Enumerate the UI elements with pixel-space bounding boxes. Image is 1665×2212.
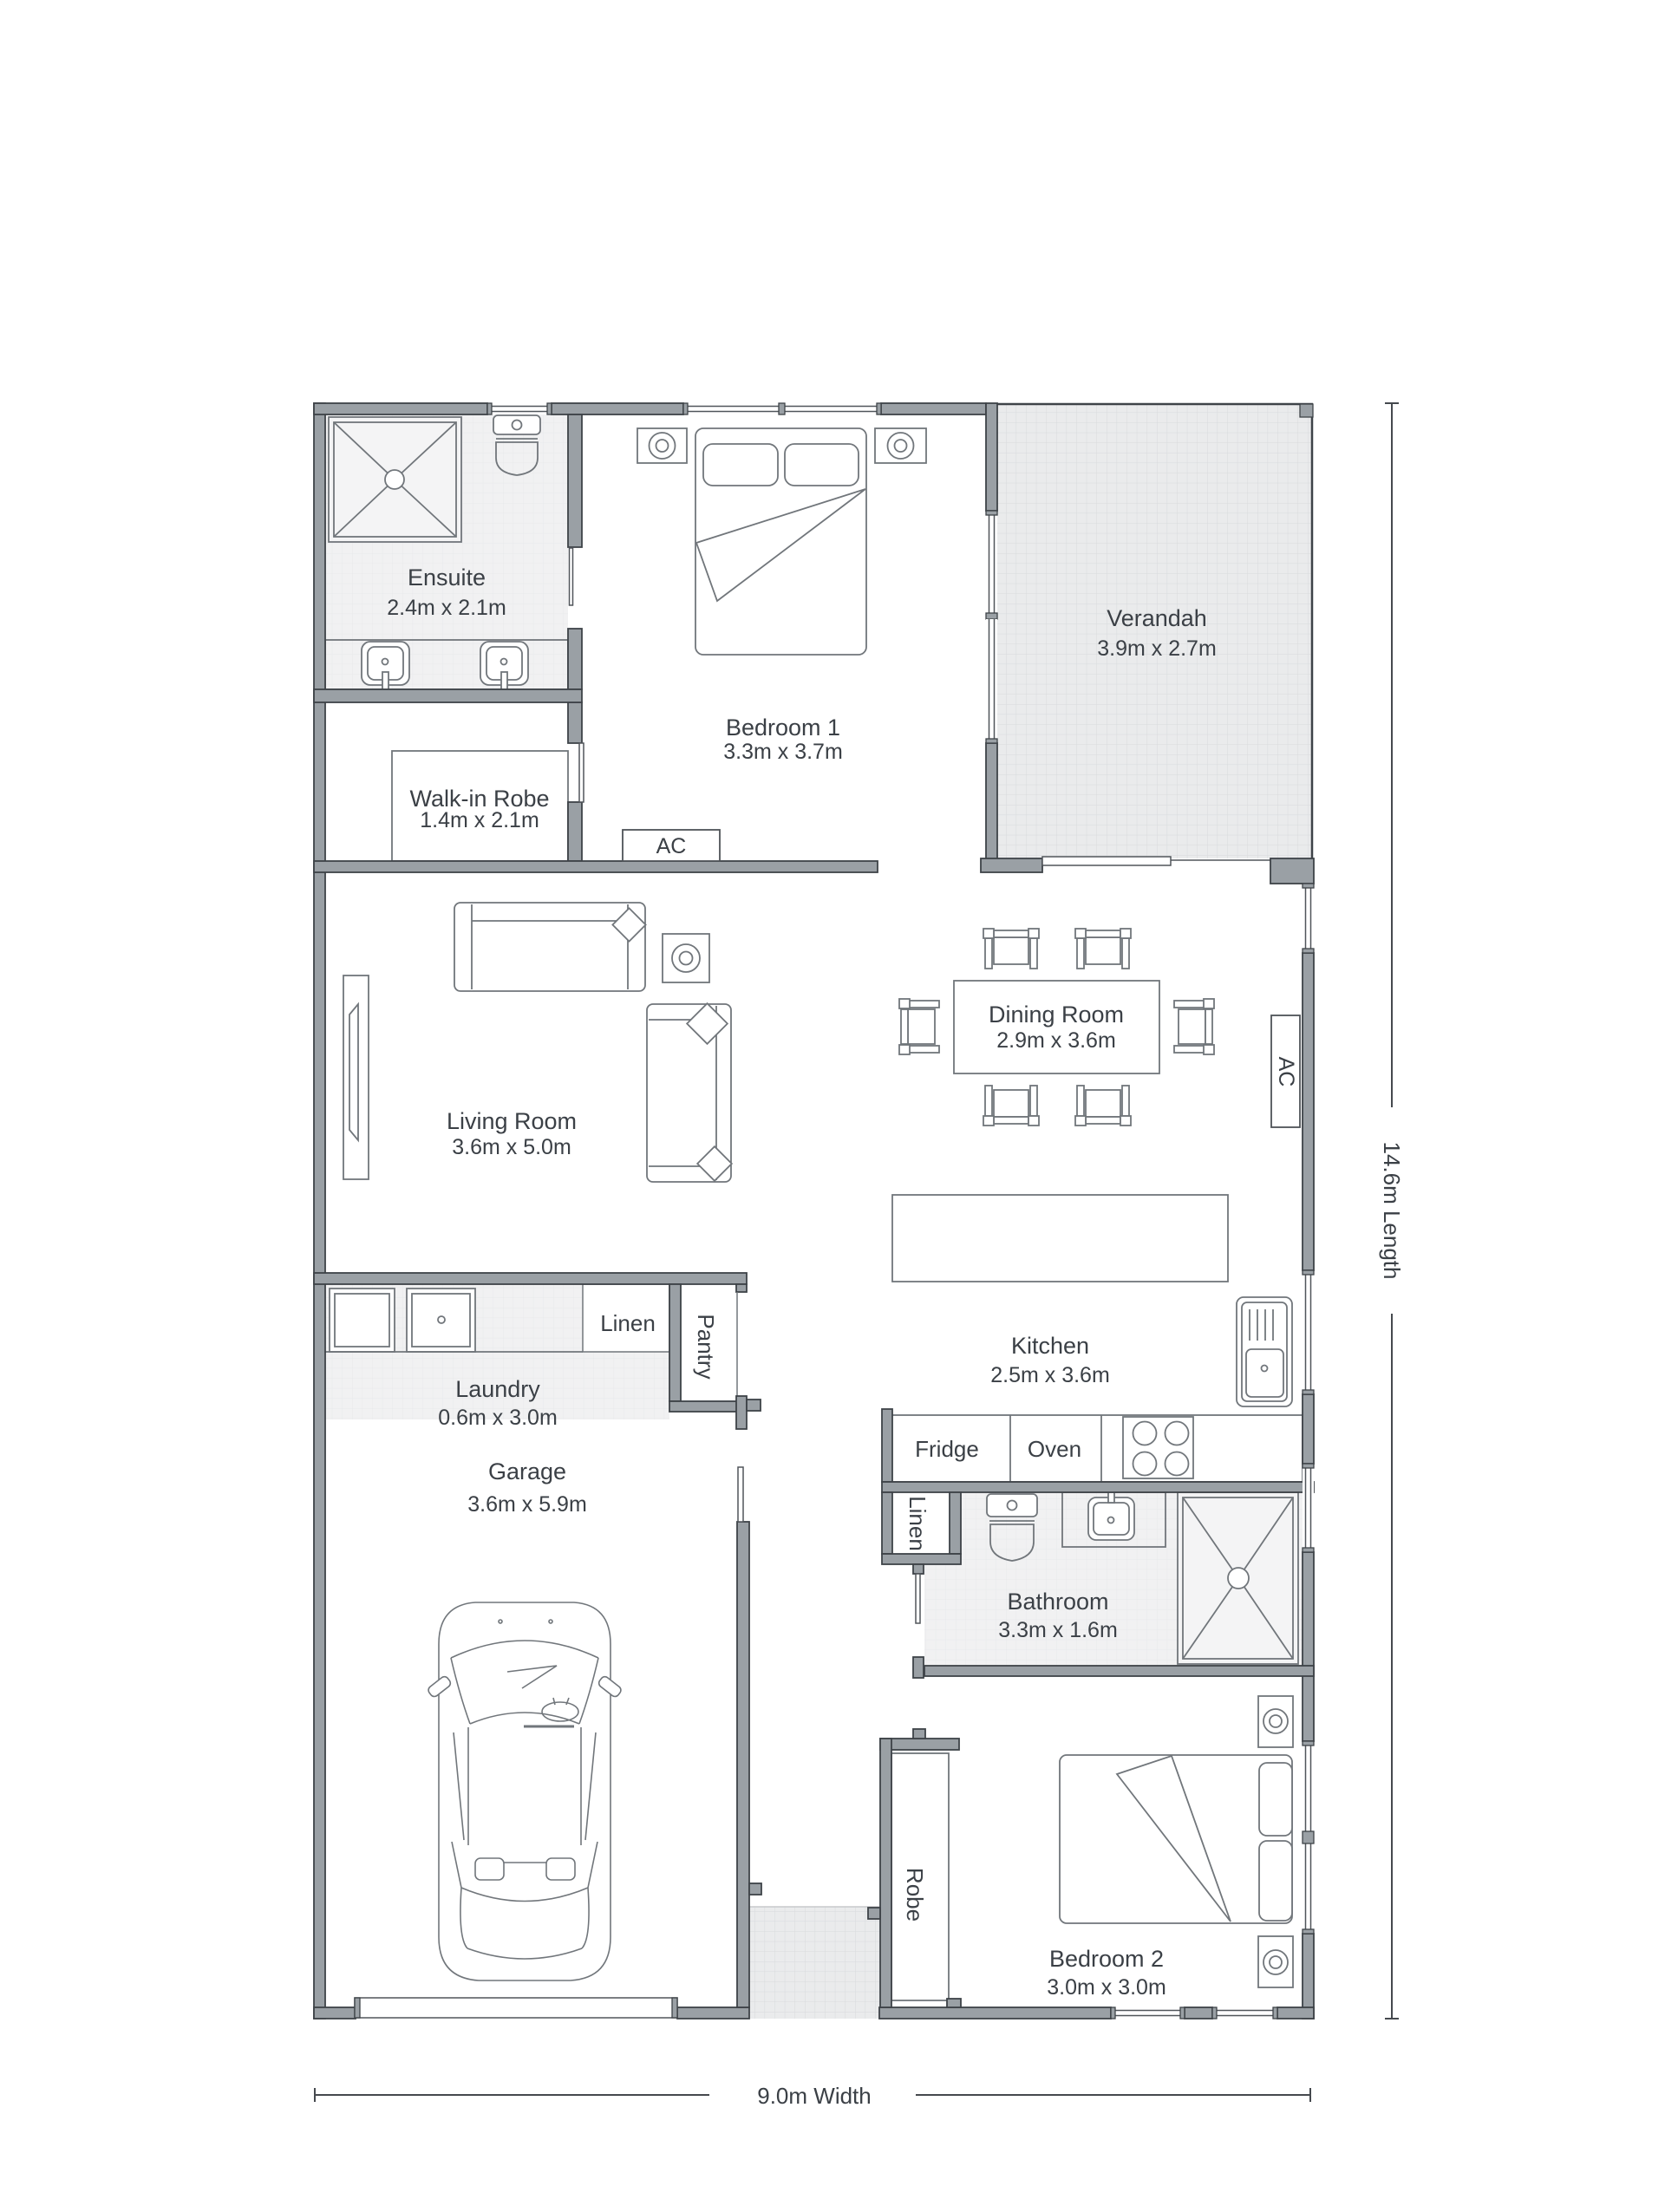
svg-text:2.4m x 2.1m: 2.4m x 2.1m xyxy=(387,596,506,620)
svg-text:Ensuite: Ensuite xyxy=(408,564,486,591)
svg-text:Linen: Linen xyxy=(904,1496,930,1551)
svg-text:Robe: Robe xyxy=(902,1868,928,1922)
svg-text:Bathroom: Bathroom xyxy=(1007,1589,1108,1615)
svg-text:2.9m x 3.6m: 2.9m x 3.6m xyxy=(996,1028,1116,1053)
svg-text:AC: AC xyxy=(656,834,687,858)
svg-text:3.3m x 3.7m: 3.3m x 3.7m xyxy=(723,740,843,764)
svg-text:Oven: Oven xyxy=(1028,1436,1081,1462)
svg-text:3.3m x 1.6m: 3.3m x 1.6m xyxy=(998,1618,1118,1642)
svg-text:Garage: Garage xyxy=(488,1458,566,1484)
svg-text:AC: AC xyxy=(1274,1057,1298,1087)
svg-text:Laundry: Laundry xyxy=(455,1376,540,1402)
svg-text:2.5m x 3.6m: 2.5m x 3.6m xyxy=(990,1363,1110,1387)
svg-text:Fridge: Fridge xyxy=(915,1436,979,1462)
svg-text:Dining Room: Dining Room xyxy=(989,1002,1124,1028)
svg-text:14.6m Length: 14.6m Length xyxy=(1379,1141,1405,1279)
svg-text:Bedroom 2: Bedroom 2 xyxy=(1049,1946,1164,1972)
svg-text:Kitchen: Kitchen xyxy=(1011,1333,1089,1359)
svg-text:0.6m x 3.0m: 0.6m x 3.0m xyxy=(438,1406,558,1430)
svg-text:Living Room: Living Room xyxy=(447,1108,577,1134)
svg-text:Verandah: Verandah xyxy=(1107,605,1207,631)
svg-text:3.6m x 5.9m: 3.6m x 5.9m xyxy=(467,1492,587,1517)
svg-text:9.0m Width: 9.0m Width xyxy=(757,2083,872,2109)
svg-text:1.4m x 2.1m: 1.4m x 2.1m xyxy=(420,808,539,832)
svg-text:3.6m x 5.0m: 3.6m x 5.0m xyxy=(452,1135,571,1159)
svg-text:3.0m x 3.0m: 3.0m x 3.0m xyxy=(1047,1975,1166,2000)
svg-text:3.9m x 2.7m: 3.9m x 2.7m xyxy=(1097,636,1217,661)
svg-text:Bedroom 1: Bedroom 1 xyxy=(726,714,840,741)
svg-text:Linen: Linen xyxy=(600,1310,656,1336)
svg-text:Pantry: Pantry xyxy=(693,1314,719,1379)
